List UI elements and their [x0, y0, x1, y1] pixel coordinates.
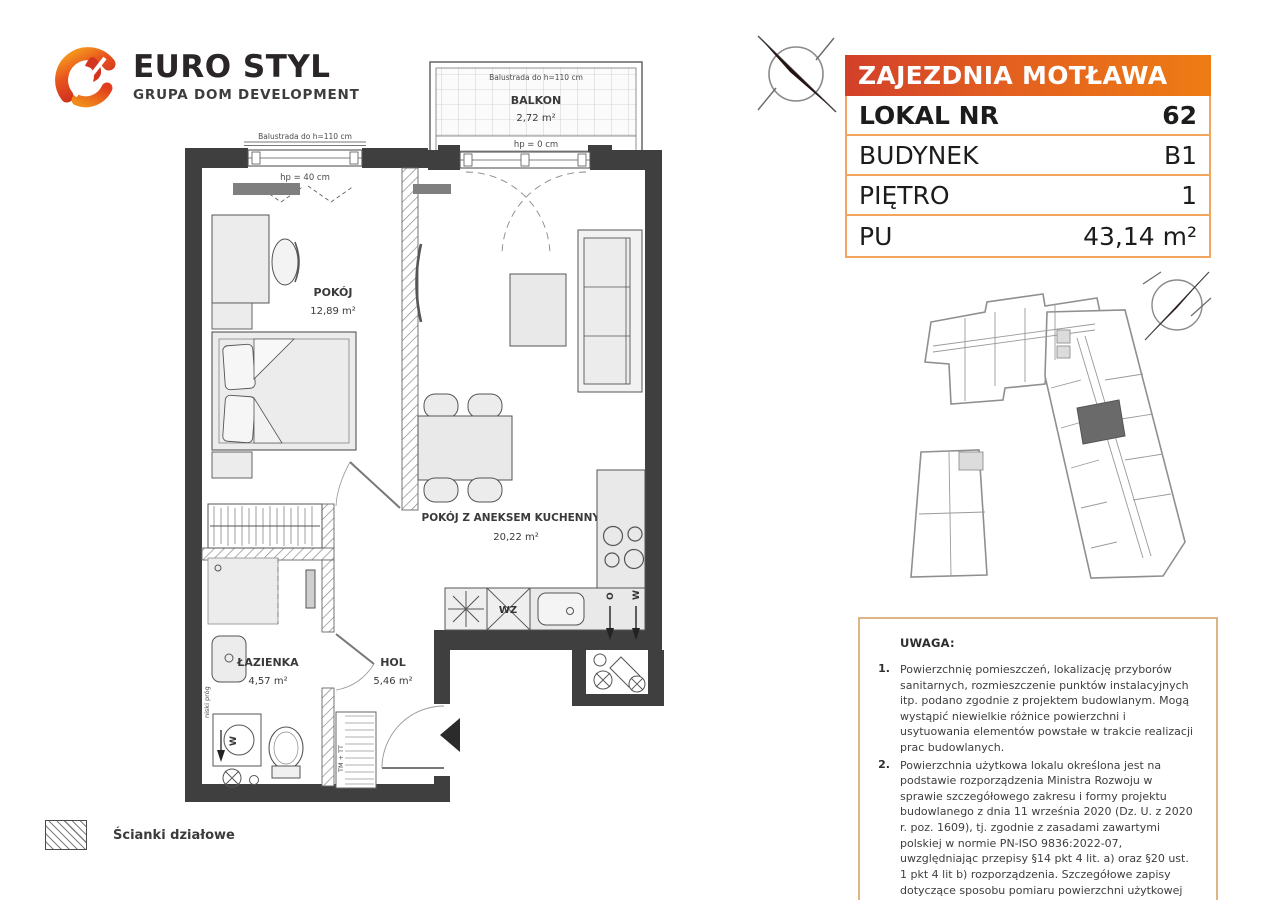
table-row-lokal: LOKAL NR 62 — [847, 96, 1209, 136]
bedroom-name: POKÓJ — [314, 286, 353, 299]
living-area: 20,22 m² — [493, 532, 539, 543]
building-location-map — [885, 268, 1220, 613]
kitchen: WZ O W — [445, 470, 648, 694]
legend-label: Ścianki działowe — [113, 828, 235, 843]
living-name: POKÓJ Z ANEKSEM KUCHENNYM — [422, 511, 611, 524]
bedroom-sill-label: hp = 40 cm — [280, 173, 330, 183]
table-row-budynek: BUDYNEK B1 — [847, 136, 1209, 176]
notes-box: UWAGA: 1. Powierzchnię pomieszczeń, loka… — [858, 617, 1218, 900]
radiator — [233, 183, 300, 195]
notes-heading: UWAGA: — [900, 636, 1198, 650]
nightstand — [212, 303, 252, 329]
bedroom-area: 12,89 m² — [310, 306, 356, 317]
project-title: ZAJEZDNIA MOTŁAWA — [845, 55, 1211, 96]
unit-info-panel: ZAJEZDNIA MOTŁAWA LOKAL NR 62 BUDYNEK B1… — [845, 55, 1211, 258]
radiator — [413, 184, 451, 194]
riser-o-label: O — [606, 592, 616, 600]
toilet — [269, 727, 303, 778]
balcony: Balustrada do h=110 cm BALKON 2,72 m² hp… — [430, 62, 642, 154]
table-row-pietro: PIĘTRO 1 — [847, 176, 1209, 216]
bathroom-door — [336, 634, 374, 664]
fridge — [445, 588, 487, 630]
balcony-name: BALKON — [511, 94, 562, 107]
bedroom-balustrade-label: Balustrada do h=110 cm — [258, 132, 352, 141]
row-label: PU — [859, 222, 892, 251]
note-number: 2. — [874, 758, 890, 900]
balcony-door — [460, 152, 590, 256]
balcony-sill-label: hp = 0 cm — [514, 140, 558, 150]
plumbing-risers — [586, 650, 648, 694]
balcony-balustrade-label: Balustrada do h=110 cm — [489, 73, 583, 82]
note-item: 2. Powierzchnia użytkowa lokalu określon… — [874, 758, 1198, 900]
row-label: LOKAL NR — [859, 101, 999, 130]
bedroom: POKÓJ 12,89 m² — [208, 183, 400, 548]
hall-closet-label: TM + TT — [337, 745, 345, 773]
north-arrow-icon — [748, 28, 844, 120]
sofa — [578, 230, 642, 392]
bathroom-area: 4,57 m² — [248, 676, 287, 687]
row-label: PIĘTRO — [859, 181, 950, 210]
washing-machine: W — [213, 714, 261, 766]
page: EURO STYL GRUPA DOM DEVELOPMENT Balustra… — [0, 0, 1273, 900]
coffee-table — [510, 274, 566, 346]
entrance-arrow — [440, 718, 460, 752]
note-text: Powierzchnię pomieszczeń, lokalizację pr… — [900, 662, 1198, 756]
note-number: 1. — [874, 662, 890, 756]
dishwasher: WZ — [487, 588, 530, 630]
row-value: 62 — [1162, 101, 1197, 130]
partition-wall-hatch-swatch — [45, 820, 87, 850]
entrance-door — [382, 706, 460, 768]
hall-closet: TM + TT — [336, 712, 376, 788]
highlighted-unit — [1077, 400, 1125, 444]
shower — [208, 558, 278, 624]
minimap-north-arrow-icon — [1143, 272, 1211, 340]
desk — [212, 215, 269, 303]
row-value: B1 — [1164, 141, 1197, 170]
dining-set — [418, 394, 512, 502]
wardrobe — [208, 504, 322, 548]
nightstand — [212, 452, 252, 478]
floor-plan: Balustrada do h=110 cm BALKON 2,72 m² hp… — [0, 0, 720, 900]
hall-area: 5,46 m² — [373, 676, 412, 687]
row-label: BUDYNEK — [859, 141, 979, 170]
bedroom-door — [350, 462, 400, 508]
sink — [538, 593, 584, 625]
washer-label: W — [229, 736, 239, 746]
legend: Ścianki działowe — [45, 820, 235, 850]
table-row-pu: PU 43,14 m² — [847, 216, 1209, 256]
note-item: 1. Powierzchnię pomieszczeń, lokalizację… — [874, 662, 1198, 756]
notes-list: 1. Powierzchnię pomieszczeń, lokalizację… — [874, 662, 1198, 900]
riser-w-label: W — [632, 590, 642, 600]
radiator — [306, 570, 315, 608]
balcony-area: 2,72 m² — [516, 113, 555, 124]
note-text: Powierzchnia użytkowa lokalu określona j… — [900, 758, 1198, 900]
dishwasher-label: WZ — [499, 605, 517, 616]
row-value: 1 — [1181, 181, 1197, 210]
desk-chair — [272, 239, 298, 285]
row-value: 43,14 m² — [1083, 222, 1197, 251]
unit-info-table: LOKAL NR 62 BUDYNEK B1 PIĘTRO 1 PU 43,14… — [845, 96, 1211, 258]
bathroom-name: ŁAZIENKA — [236, 656, 299, 669]
low-threshold-label: niski próg — [203, 686, 211, 718]
hall-name: HOL — [380, 656, 406, 669]
bed — [212, 332, 356, 450]
